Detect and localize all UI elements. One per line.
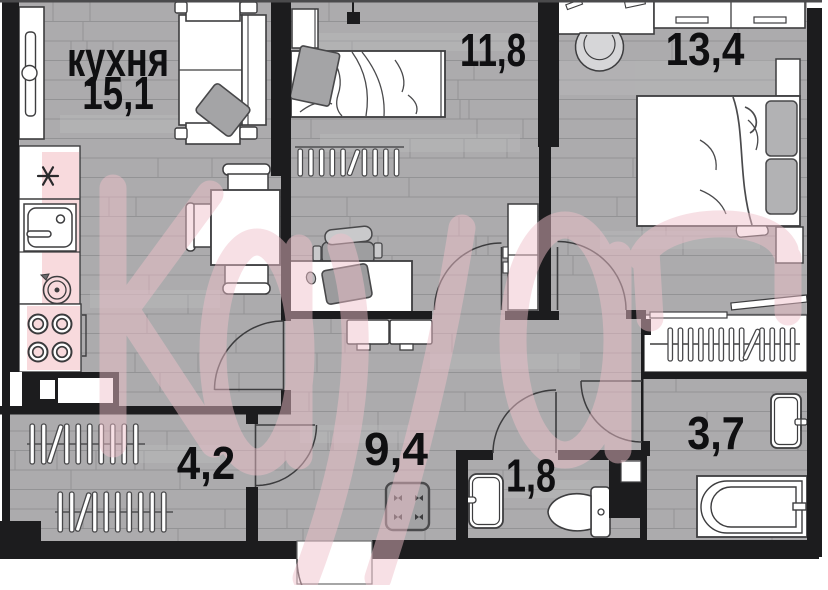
svg-text:9,4: 9,4 [364, 423, 428, 475]
svg-text:15,1: 15,1 [82, 67, 154, 119]
svg-text:13,4: 13,4 [666, 25, 745, 76]
svg-text:11,8: 11,8 [460, 24, 526, 76]
svg-text:4,2: 4,2 [177, 438, 235, 489]
svg-text:3,7: 3,7 [687, 408, 745, 460]
svg-text:1,8: 1,8 [506, 450, 556, 501]
